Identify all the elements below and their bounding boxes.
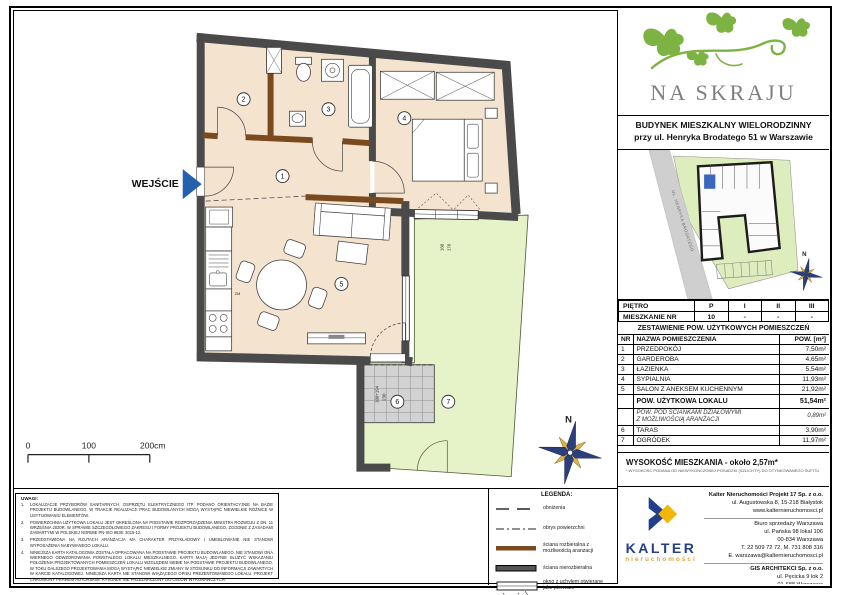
dishwasher [206,289,232,311]
floor-value: I [728,301,762,312]
nightstand [485,108,497,118]
room-number-3: 3 [327,107,331,114]
dash-dot-line-symbol [495,520,543,538]
building-title-line2: przy ul. Henryka Brodatego 51 w Warszawi… [618,132,829,144]
kitchen-units [206,207,233,351]
coffee-table [336,241,368,264]
developer-block: KALTER nieruchomości Kalter Nieruchomośc… [618,487,829,584]
floor-label: PIĘTRO [619,301,695,312]
title-block: NA SKRAJU BUDYNEK MIESZKALNY WIELORODZIN… [617,10,829,584]
dashed-line-symbol [495,500,543,518]
note-item: 4.NINIEJSZA KARTA KATALOGOWA ZOSTAŁA OPR… [21,550,273,582]
total-area-row: POW. UŻYTKOWA LOKALU 51,54m² [618,395,829,409]
cooktop [206,311,232,337]
col-header-nr: NR [618,335,633,345]
unit-value: - [762,312,796,323]
shaft [267,47,282,73]
architect-contact: GIS ARCHITEKCI Sp. z o.o. ul. Pęcicka 9 … [704,564,823,584]
legend-title: LEGENDA: [541,492,612,498]
entrance-marker: WEJŚCIE [132,169,202,199]
table-row: 6 TARAS 3,90m² [618,425,829,435]
project-logo: NA SKRAJU [618,10,829,116]
table-row: 2 GARDEROBA 4,65m² [618,355,829,365]
project-name: NA SKRAJU [618,80,829,106]
total-area-value: 51,54m² [779,395,829,409]
bottom-band: UWAGI: 1.LOKALIZACJE PRZYBORÓW SANITARNY… [13,488,617,584]
scale-bar: 0 100 200cm [26,441,166,463]
terrace-height-dim: 230 [381,393,386,401]
floor-unit-table: PIĘTRO P I II III MIESZKANIE NR 10 - - - [618,300,829,322]
entrance-label: WEJŚCIE [132,177,179,190]
floor-value: III [795,301,829,312]
table-row: 7 OGRÓDEK 11,97m² [618,435,829,445]
highlighted-unit [704,174,715,188]
floor-plan-sheet: 108+194 230 [0,0,841,595]
table-row: 5 SALON Z ANEKSEM KUCHENNYM 21,92m² [618,385,829,395]
unit-value: - [795,312,829,323]
floor-plan-area: 108+194 230 [13,11,617,488]
room-number-6: 6 [395,399,399,406]
apartment-height: WYSOKOŚĆ MIESZKANIA - około 2,57m* * WYS… [618,453,829,487]
sofa [313,203,391,240]
floor-value: P [695,301,729,312]
note-item: 1.LOKALIZACJE PRZYBORÓW SANITARNYCH, OSP… [21,502,273,518]
floor-plan-drawing: 108+194 230 [13,11,617,488]
kalter-logo-icon [643,495,679,533]
col-header-name: NAZWA POMIESZCZENIA [633,335,779,345]
unit-value: - [728,312,762,323]
total-area-label: POW. UŻYTKOWA LOKALU [633,395,779,409]
compass-north-label: N [565,415,572,426]
room-number-2: 2 [242,97,246,104]
unit-label: MIESZKANIE NR [619,312,695,323]
notes-box: UWAGI: 1.LOKALIZACJE PRZYBORÓW SANITARNY… [15,493,279,579]
height-label: WYSOKOŚĆ MIESZKANIA - około 2,57m* [626,458,821,467]
table-row: 1 PRZEDPOKÓJ 7,50m² [618,345,829,355]
scale-200: 200cm [140,441,165,451]
kalter-logo: KALTER nieruchomości [618,487,704,584]
tilt-window-symbol [495,580,543,595]
building-title: BUDYNEK MIESZKALNY WIELORODZINNY przy ul… [618,116,829,150]
terrace-width-dim: 108+194 [374,385,379,402]
room-number-4: 4 [402,116,406,123]
room-number-5: 5 [340,281,344,288]
unit-value: 10 [695,312,729,323]
company-contact: Kalter Nieruchomości Projekt 17 Sp. z o.… [704,490,823,519]
demountable-wall-symbol [495,540,543,558]
table-row: 3 ŁAZIENKA 5,54m² [618,365,829,375]
ivy-logo-graphic [624,10,824,82]
area-schedule-title: ZESTAWIENIE POW. UŻYTKOWYCH POMIESZCZEŃ [618,322,829,335]
legend-item: obrys powierzchni [495,520,612,538]
scale-100: 100 [82,441,96,451]
legend-item: obniżenia [495,500,612,518]
compass-rose: N [533,415,607,488]
floor-value: II [762,301,796,312]
terrace: 108+194 230 [362,365,434,423]
site-plan: UL. HENRYKA BRODATEGO N [618,150,829,300]
room-number-7: 7 [446,399,450,406]
building-title-line1: BUDYNEK MIESZKALNY WIELORODZINNY [618,120,829,132]
legend-item: ściana nierozbieralna [495,560,612,578]
scale-0: 0 [26,441,31,451]
nightstand [485,183,497,193]
height-footnote: * WYSOKOŚĆ PODANA OD NIEWYKOŃCZONEJ POSA… [626,468,821,473]
legend: LEGENDA: obniżenia obrys powierzchni ści… [488,489,617,585]
kalter-brand-subtitle: nieruchomości [618,556,704,563]
structural-wall-symbol [495,560,543,578]
partition-area-row: POW. POD ŚCIANKAMI DZIAŁOWYMIZ MOŻLIWOŚC… [618,409,829,426]
note-item: 2.POWIERZCHNIA UŻYTKOWA LOKALU JEST OKRE… [21,520,273,536]
col-header-area: POW. [m²] [779,335,829,345]
window-dim-a: 160 [439,243,444,251]
contact-info: Kalter Nieruchomości Projekt 17 Sp. z o.… [704,487,829,584]
kalter-brand-name: KALTER [618,540,704,556]
partition-area-value: 0,89m² [779,409,829,426]
legend-item: okno z uchyłem otwierane jako pierwsze [495,580,612,595]
area-schedule: ZESTAWIENIE POW. UŻYTKOWYCH POMIESZCZEŃ … [618,322,829,453]
note-item: 3.PRZEDSTAWIONA NA RZUTACH ARANŻACJA MA … [21,537,273,548]
notes-title: UWAGI: [21,496,273,501]
site-plan-drawing: UL. HENRYKA BRODATEGO N [618,150,829,299]
legend-item: ściana rozbieralna z możliwością aranżac… [495,540,612,558]
site-compass-north-label: N [802,251,806,258]
table-row: 4 SYPIALNIA 11,93m² [618,375,829,385]
dishwasher-label: ZM [235,291,241,296]
window-dim-b: 170 [446,243,451,251]
sales-office-contact: Biuro sprzedaży Warszawa ul. Pańska 98 l… [704,519,823,564]
room-number-1: 1 [281,174,285,181]
dining-table [257,260,307,310]
